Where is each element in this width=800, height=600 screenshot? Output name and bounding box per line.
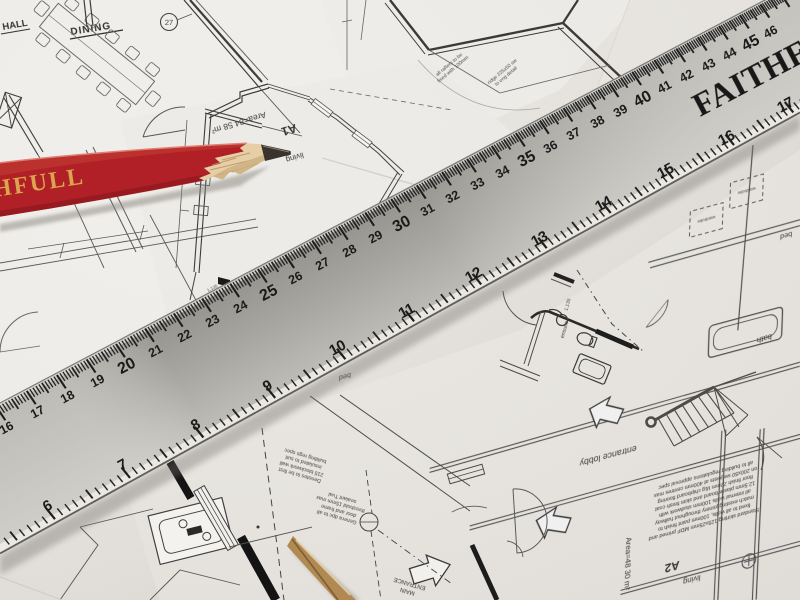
svg-text:27: 27 — [165, 18, 173, 27]
